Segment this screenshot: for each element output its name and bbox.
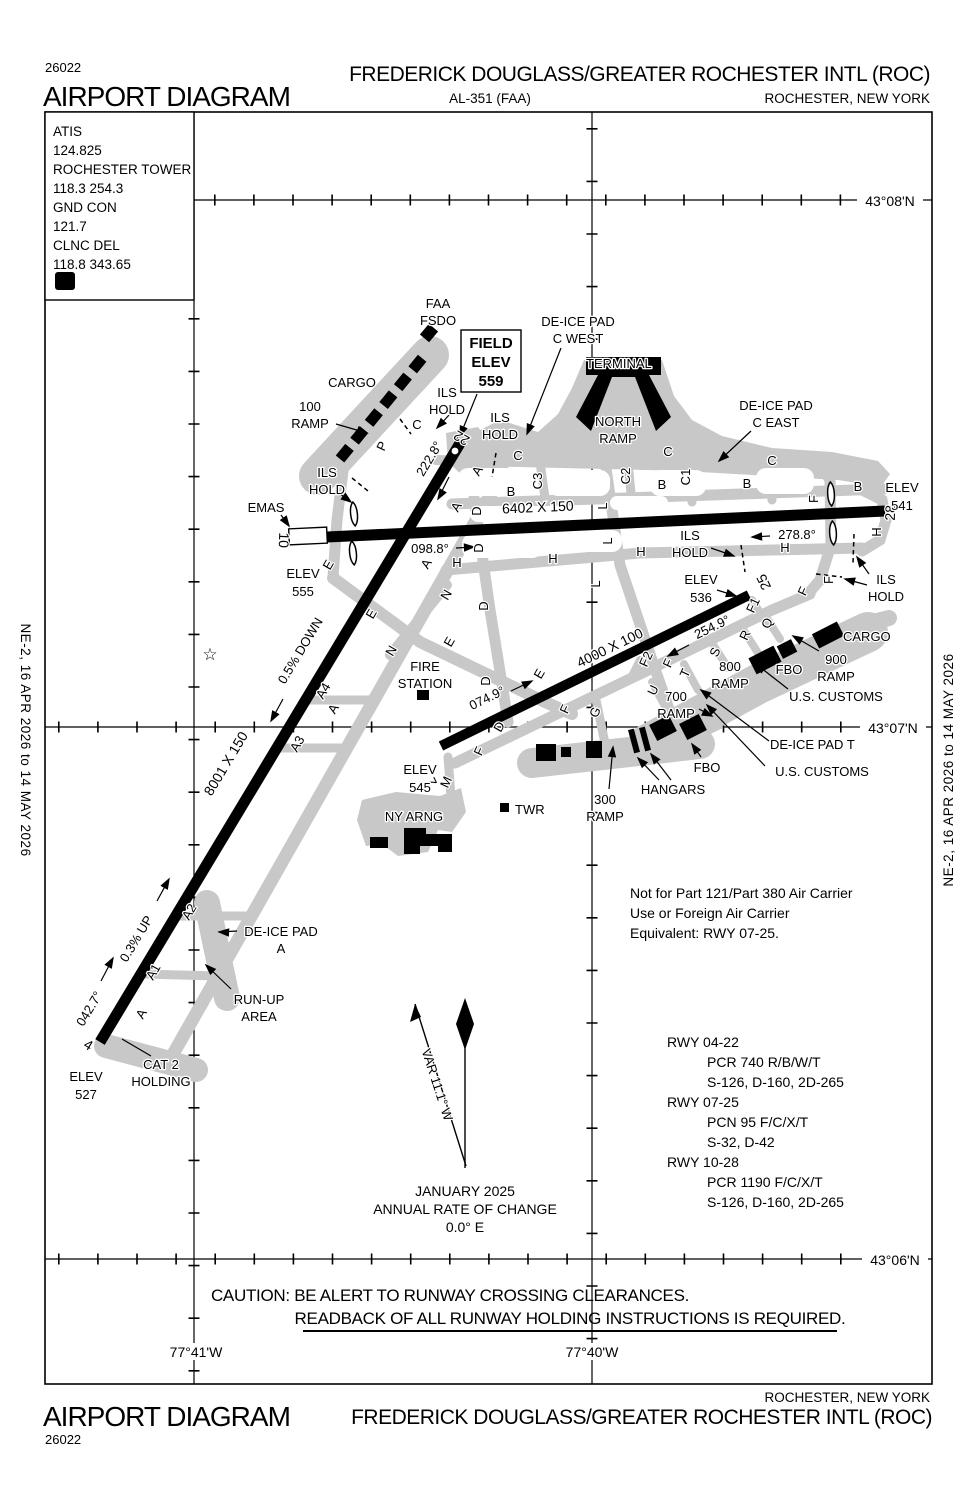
- rwy-data-row: PCN 95 F/C/X/T: [707, 1114, 809, 1130]
- note-line: Not for Part 121/Part 380 Air Carrier: [630, 885, 853, 901]
- obstacle-star-icon: ☆: [202, 645, 217, 665]
- chart-number-bottom: 26022: [45, 1432, 81, 1447]
- ramp-900-label: 900: [825, 652, 847, 667]
- rwy-data-row: RWY 10-28: [667, 1154, 739, 1170]
- comm-line: 121.7: [53, 219, 87, 234]
- faa-fsdo-label: FAA: [426, 296, 451, 311]
- comm-line: ROCHESTER TOWER: [53, 162, 192, 177]
- rwy-0422-dimensions: 8001 X 150: [200, 728, 251, 798]
- effective-dates-banner-left: NE-2, 16 APR 2026 to 14 MAY 2026: [18, 623, 33, 856]
- fire-station-building: [417, 690, 429, 700]
- hangars-label: HANGARS: [641, 782, 706, 797]
- caution-block: CAUTION: BE ALERT TO RUNWAY CROSSING CLE…: [211, 1286, 846, 1331]
- tower-label: TWR: [515, 802, 545, 817]
- city-footer: ROCHESTER, NEW YORK: [764, 1390, 930, 1405]
- twy-label-b: B: [854, 479, 863, 494]
- comm-line: 118.3 254.3: [53, 181, 123, 196]
- rwy-10-heading: 098.8°: [411, 541, 449, 556]
- rwy-data-row: PCR 740 R/B/W/T: [707, 1054, 821, 1070]
- comm-frequency-box: ATIS 124.825 ROCHESTER TOWER 118.3 254.3…: [45, 112, 194, 300]
- twy-label-h: H: [780, 540, 789, 555]
- ramp-300-area: [532, 744, 700, 763]
- rwy-4-number: 4: [81, 1036, 96, 1054]
- lat-label-43-06n: 43°06'N: [870, 1252, 920, 1268]
- deice-c-west-label: C WEST: [553, 331, 604, 346]
- rwy-28-heading: 278.8°: [778, 527, 816, 542]
- ramp-100-label: 100: [299, 399, 321, 414]
- twy-label-c: C: [412, 417, 421, 432]
- ils-hold-label: HOLD: [482, 427, 518, 442]
- airport-diagram-page: 26022 AIRPORT DIAGRAM FREDERICK DOUGLASS…: [0, 0, 978, 1500]
- rwy-data-row: PCR 1190 F/C/X/T: [707, 1174, 823, 1190]
- twy-label-h: H: [869, 527, 884, 536]
- ramp-100-label: RAMP: [291, 416, 329, 431]
- fbo-label: FBO: [776, 662, 803, 677]
- note-line: Equivalent: RWY 07-25.: [630, 925, 779, 941]
- elev-541-label: ELEV: [885, 480, 919, 495]
- page-title: AIRPORT DIAGRAM: [43, 81, 290, 112]
- ramp-900-label: RAMP: [817, 669, 855, 684]
- cargo-east-label: CARGO: [843, 629, 891, 644]
- deice-c-west-label: DE-ICE PAD: [541, 314, 614, 329]
- terminal-label: TERMINAL: [586, 356, 652, 371]
- tower-building: [500, 803, 509, 812]
- note-line: Use or Foreign Air Carrier: [630, 905, 790, 921]
- runup-area-label: RUN-UP: [234, 992, 285, 1007]
- twy-label-e: E: [530, 666, 547, 681]
- chart-number-top: 26022: [45, 60, 81, 75]
- runway-22-threshold-dot: [452, 448, 459, 455]
- field-elev-label: ELEV: [471, 354, 510, 371]
- ils-hold-label: ILS: [490, 410, 510, 425]
- hot-spot-d-letter: D: [60, 274, 69, 289]
- twy-label-b: B: [658, 477, 667, 492]
- ils-hold-label: ILS: [680, 528, 700, 543]
- deice-pad-a-label: A: [277, 941, 286, 956]
- deice-pad-t-label: DE-ICE PAD T: [770, 737, 855, 752]
- variation-date: JANUARY 2025: [415, 1183, 515, 1199]
- twy-label-p: P: [373, 439, 390, 453]
- procedure-id: AL-351 (FAA): [449, 91, 531, 106]
- ny-arng-label: NY ARNG: [385, 809, 443, 824]
- ramp-300-label: RAMP: [586, 809, 624, 824]
- elev-536-value: 536: [690, 590, 712, 605]
- twy-label-f: F: [806, 495, 821, 503]
- emas-label: EMAS: [248, 500, 285, 515]
- ils-hold-label: HOLD: [429, 402, 465, 417]
- twy-label-h: H: [452, 555, 461, 570]
- airport-diagram-svg: 26022 AIRPORT DIAGRAM FREDERICK DOUGLASS…: [0, 0, 978, 1500]
- notes-block: Not for Part 121/Part 380 Air Carrier Us…: [630, 885, 853, 941]
- elev-555-value: 555: [292, 584, 314, 599]
- elev-527-label: ELEV: [69, 1069, 103, 1084]
- page-title-footer: AIRPORT DIAGRAM: [43, 1401, 290, 1432]
- twy-label-c2: C2: [618, 468, 633, 485]
- rwy-data-row: S-126, D-160, 2D-265: [707, 1074, 844, 1090]
- emas-block: [289, 527, 328, 545]
- lon-label-77-40w: 77°40'W: [566, 1344, 619, 1360]
- twy-label-c: C: [663, 444, 672, 459]
- twy-label-h: H: [548, 551, 557, 566]
- lat-label-43-07n: 43°07'N: [868, 720, 918, 736]
- twy-label-h: H: [636, 544, 645, 559]
- elev-545-value: 545: [409, 780, 431, 795]
- north-ramp-label: NORTH: [595, 414, 641, 429]
- field-elev-label: FIELD: [469, 335, 512, 352]
- cargo-label: CARGO: [328, 375, 376, 390]
- comm-line: 118.8 343.65: [53, 257, 131, 272]
- lon-label-77-41w: 77°41'W: [170, 1344, 223, 1360]
- comm-line: 124.825: [53, 143, 102, 158]
- twy-label-d: D: [478, 676, 493, 685]
- lat-label-43-08n: 43°08'N: [865, 193, 915, 209]
- cat2-holding-label: HOLDING: [131, 1074, 190, 1089]
- north-arrow-icon: [456, 998, 474, 1050]
- twy-label-l: L: [600, 537, 615, 544]
- rwy-data-row: S-126, D-160, 2D-265: [707, 1194, 844, 1210]
- effective-dates-banner-right: NE-2, 16 APR 2026 to 14 MAY 2026: [941, 653, 956, 886]
- north-ramp-label: RAMP: [599, 431, 637, 446]
- twy-label-d: D: [476, 601, 491, 610]
- ramp-700-label: 700: [665, 689, 687, 704]
- north-variation-arrows: VAR 11.1° W JANUARY 2025 ANNUAL RATE OF …: [373, 998, 557, 1235]
- cat2-holding-label: CAT 2: [143, 1057, 179, 1072]
- fire-station-label: FIRE: [410, 659, 440, 674]
- ramp-800-label: 800: [719, 659, 741, 674]
- rwy-4-heading: 042.7°: [73, 989, 105, 1029]
- rwy-data-row: S-32, D-42: [707, 1134, 775, 1150]
- twy-label-c: C: [513, 448, 522, 463]
- caution-line-2: READBACK OF ALL RUNWAY HOLDING INSTRUCTI…: [295, 1309, 846, 1328]
- footer: ROCHESTER, NEW YORK FREDERICK DOUGLASS/G…: [43, 1390, 932, 1447]
- airport-name-footer: FREDERICK DOUGLASS/GREATER ROCHESTER INT…: [351, 1406, 932, 1429]
- twy-label-c3: C3: [530, 473, 545, 490]
- twy-label-a: A: [417, 556, 434, 571]
- runway-data-block: RWY 04-22 PCR 740 R/B/W/T S-126, D-160, …: [667, 1034, 844, 1210]
- airport-name-header: FREDERICK DOUGLASS/GREATER ROCHESTER INT…: [349, 63, 930, 86]
- deice-c-east-label: C EAST: [753, 415, 800, 430]
- fire-station-label: STATION: [398, 676, 452, 691]
- variation-rate-label: ANNUAL RATE OF CHANGE: [373, 1201, 557, 1217]
- fbo-label: FBO: [694, 760, 721, 775]
- twy-label-b: B: [743, 476, 752, 491]
- comm-line: ATIS: [53, 124, 82, 139]
- ramp-300-label: 300: [594, 792, 616, 807]
- ramp-800-label: RAMP: [711, 676, 749, 691]
- rwy-data-row: RWY 04-22: [667, 1034, 739, 1050]
- twy-label-d: D: [471, 543, 486, 552]
- field-elev-value: 559: [478, 373, 503, 390]
- faa-fsdo-label: FSDO: [420, 313, 456, 328]
- ils-hold-label: ILS: [437, 385, 457, 400]
- rwy-1028-dimensions: 6402 X 150: [502, 497, 574, 516]
- ils-hold-label: ILS: [876, 572, 896, 587]
- twy-label-b: B: [507, 484, 516, 499]
- caution-line-1: CAUTION: BE ALERT TO RUNWAY CROSSING CLE…: [211, 1286, 689, 1305]
- elev-527-value: 527: [75, 1087, 97, 1102]
- twy-label-f: F: [821, 576, 836, 584]
- ils-hold-label: HOLD: [672, 545, 708, 560]
- us-customs-label: U.S. CUSTOMS: [775, 764, 869, 779]
- elev-541-value: 541: [891, 498, 913, 513]
- twy-label-a: A: [132, 1006, 149, 1021]
- ils-hold-label: ILS: [317, 465, 337, 480]
- variation-value: VAR 11.1° W: [419, 1047, 457, 1123]
- runup-area-label: AREA: [241, 1009, 277, 1024]
- deice-c-east-label: DE-ICE PAD: [739, 398, 812, 413]
- rwy-25-number: 25: [753, 571, 774, 592]
- rwy-10-number: 10: [276, 532, 293, 548]
- deice-pad-a-label: DE-ICE PAD: [244, 924, 317, 939]
- us-customs-label: U.S. CUSTOMS: [789, 689, 883, 704]
- ils-hold-label: HOLD: [868, 589, 904, 604]
- elev-555-label: ELEV: [286, 566, 320, 581]
- city-header: ROCHESTER, NEW YORK: [764, 91, 930, 106]
- twy-label-c1: C1: [678, 469, 693, 486]
- twy-label-d: D: [469, 506, 484, 515]
- twy-label-l: L: [595, 502, 610, 509]
- twy-label-l: L: [588, 580, 603, 587]
- elev-536-label: ELEV: [684, 572, 718, 587]
- ramp-700-label: RAMP: [657, 706, 695, 721]
- elev-545-label: ELEV: [403, 762, 437, 777]
- header: 26022 AIRPORT DIAGRAM FREDERICK DOUGLASS…: [43, 60, 930, 112]
- comm-line: GND CON: [53, 200, 117, 215]
- variation-rate-value: 0.0° E: [446, 1219, 484, 1235]
- comm-line: CLNC DEL: [53, 238, 120, 253]
- twy-label-c: C: [767, 453, 776, 468]
- rwy-data-row: RWY 07-25: [667, 1094, 739, 1110]
- ils-hold-label: HOLD: [309, 482, 345, 497]
